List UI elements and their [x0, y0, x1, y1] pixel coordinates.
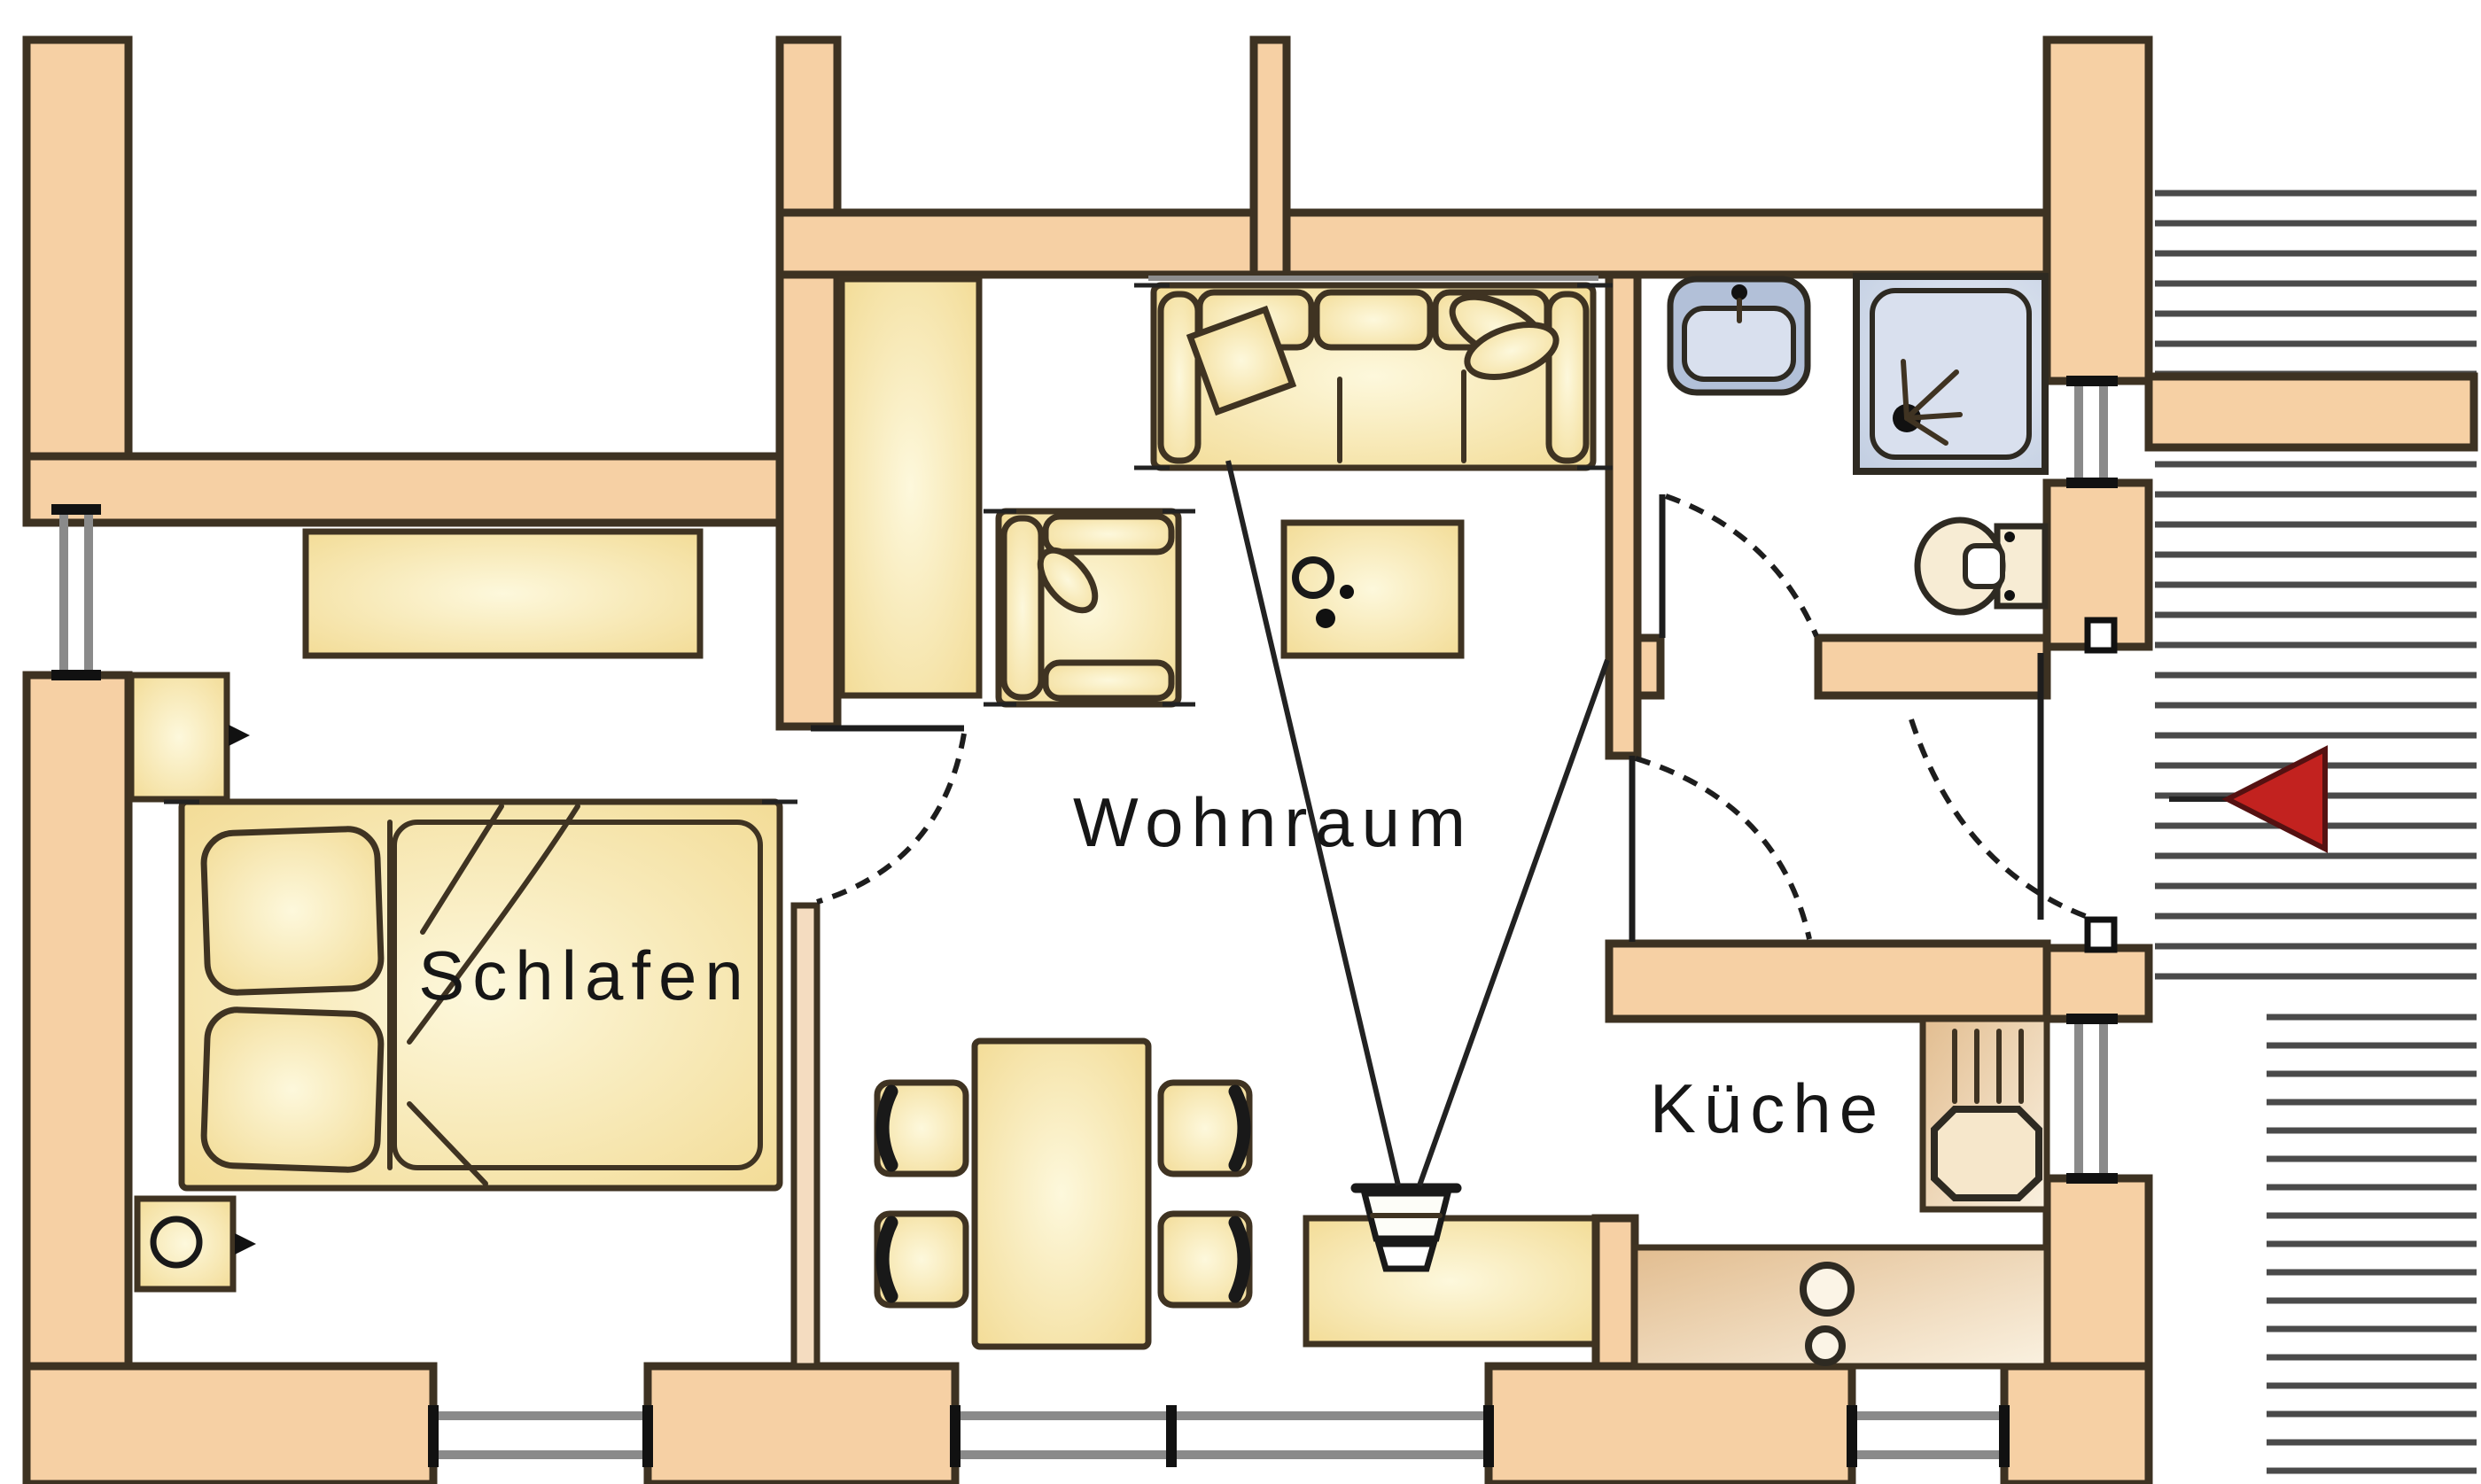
switch-pointer-icon [229, 725, 250, 746]
door-swing-arc [1911, 719, 2088, 917]
center-left-pier [780, 40, 837, 726]
sink-bowl-small [1808, 1329, 1842, 1363]
bottom-window-kitchen [1852, 1405, 2004, 1467]
bedroom-furniture [131, 532, 797, 1289]
sofa [1134, 278, 1613, 468]
floor-plan: Schlafen Wohnraum Küche [0, 0, 2481, 1484]
sofa-armrest [1161, 294, 1198, 461]
top-wall-stub [1254, 40, 1287, 275]
armchair-arm [1046, 663, 1171, 698]
sideboard-with-plant [1306, 1188, 1595, 1344]
bottom-wall-d [2004, 1366, 2149, 1484]
living-room-door [1632, 756, 1809, 942]
kitchen-top-wall [1609, 944, 2047, 1019]
door-swing-arc [1666, 496, 1816, 636]
side-table [1284, 523, 1461, 656]
side-table-top [1284, 523, 1461, 656]
shower [1856, 276, 2045, 471]
sink-bowl-large [1803, 1265, 1851, 1313]
room-label-kueche: Küche [1650, 1069, 1886, 1147]
tall-cabinet [842, 279, 979, 695]
armchair-back [1004, 518, 1041, 697]
bottom-wall-b [648, 1366, 955, 1484]
bedroom-top-wall [27, 456, 837, 523]
door-swing-arc [1636, 758, 1809, 939]
bed-pillow [203, 828, 382, 994]
armchair-arm [1046, 517, 1171, 552]
stairs-lower-flight [2267, 1017, 2477, 1471]
bottom-window-bedroom [433, 1405, 648, 1467]
sofa-back-cushion [1317, 292, 1430, 347]
shower-spray-line [1907, 415, 1960, 418]
door-jamb-block [2088, 920, 2114, 950]
sideboard [1306, 1218, 1595, 1344]
toilet [1917, 520, 2045, 612]
room-label-wohnraum: Wohnraum [1073, 783, 1474, 861]
bath-window-right [2066, 381, 2118, 483]
top-wall [780, 213, 2149, 275]
toilet-bolt [2004, 532, 2015, 542]
left-wall-window [51, 509, 101, 675]
armchair [984, 511, 1195, 704]
wash-basin [1670, 279, 1808, 392]
dresser [306, 532, 700, 656]
kitchen-left-wall [1596, 1218, 1635, 1366]
left-wall-upper [27, 40, 128, 509]
bottom-window-living [955, 1405, 1489, 1467]
bath-bottom-wall-stub [1637, 638, 1660, 695]
bottom-wall-c [1489, 1366, 1852, 1484]
bathroom [1670, 276, 2045, 612]
room-label-schlafen: Schlafen [418, 936, 751, 1014]
stove-icon [1934, 1109, 2039, 1198]
exterior-wall-stub-right [2149, 377, 2474, 447]
bed-pillow [203, 1009, 382, 1171]
nightstand-lower [137, 1199, 256, 1289]
bath-bottom-wall [1818, 638, 2047, 695]
right-wall-top [2047, 40, 2149, 381]
door-swing-arc [817, 734, 964, 902]
sofa-armrest [1549, 294, 1586, 461]
bathroom-door [1662, 494, 1816, 638]
dining-set [877, 1041, 1249, 1347]
bottom-wall-a [27, 1366, 433, 1484]
right-wall-mid2 [2047, 948, 2149, 1019]
decor-dot-icon [1340, 585, 1354, 599]
bedroom-partition-wall [794, 905, 817, 1366]
annotation-line-right [1419, 660, 1607, 1185]
pot-saucer [1379, 1244, 1434, 1269]
toilet-bolt [2004, 590, 2015, 601]
shower-spray-line [1903, 361, 1907, 418]
nightstand-body [131, 675, 227, 799]
bath-left-wall [1609, 275, 1637, 756]
stairs-upper-flight [2155, 193, 2477, 976]
bedroom-door [811, 728, 964, 902]
dining-table [975, 1041, 1148, 1347]
floor-plan-canvas: Schlafen Wohnraum Küche [0, 0, 2481, 1484]
decor-dot-icon [1316, 609, 1335, 628]
kitchen-window-right [2066, 1019, 2118, 1178]
switch-pointer-icon [235, 1233, 256, 1255]
toilet-seat [1965, 546, 2003, 587]
door-jamb-block [2088, 620, 2114, 650]
nightstand-upper [131, 675, 250, 799]
